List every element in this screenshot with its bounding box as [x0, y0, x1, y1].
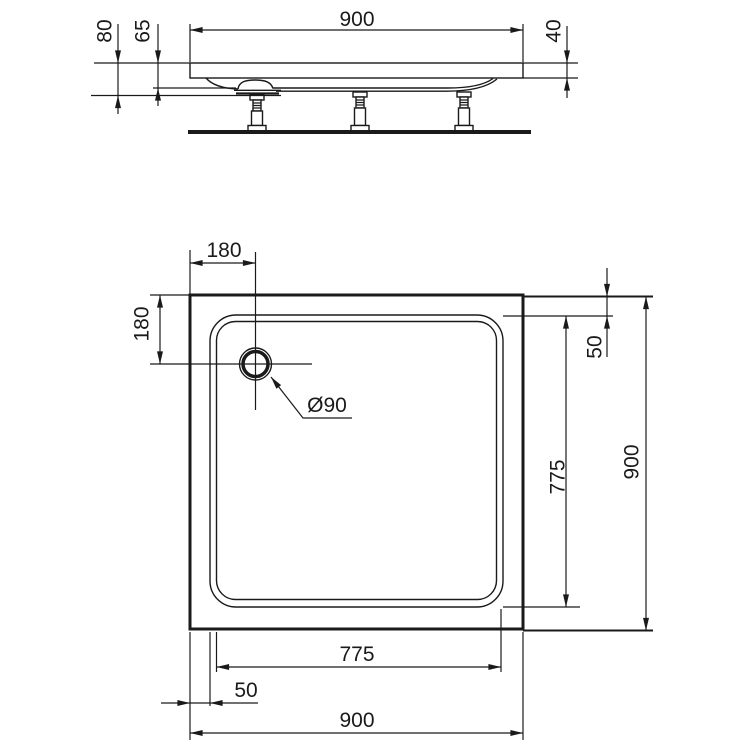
plan-view: Ø90 180 180 50 775	[130, 239, 653, 740]
dim-label-total-height: 80	[93, 19, 116, 42]
dim-label-side-overall-width: 900	[339, 8, 374, 31]
drain-trap-dome	[238, 80, 273, 89]
dim-label-plan-overall-width: 900	[339, 709, 374, 732]
side-elevation-view: 900 80 65 40	[91, 8, 578, 134]
tray-underside-profile	[206, 78, 497, 94]
floor-line	[188, 130, 531, 134]
dim-label-basin-width: 775	[339, 643, 374, 666]
dimension-drain-offset-vertical: 180	[130, 295, 190, 364]
leg-middle	[351, 92, 369, 131]
dimension-overall-height: 900	[620, 297, 646, 631]
basin-floor-edge	[217, 322, 497, 600]
dimension-drain-offset-horizontal: 180	[190, 239, 256, 295]
dim-label-rim-thickness: 40	[542, 19, 565, 42]
extension-line	[523, 63, 578, 78]
dim-label-body-height: 65	[131, 19, 154, 42]
drain-centerlines	[150, 252, 312, 410]
tray-rim-profile	[190, 63, 523, 78]
leg-right	[455, 92, 473, 131]
dim-label-drain-offset-vertical: 180	[130, 306, 153, 341]
dimension-rim-thickness: 40	[523, 19, 578, 98]
dim-label-drain-diameter: Ø90	[307, 394, 347, 417]
drain-callout: Ø90	[271, 377, 352, 418]
tray-inner-rim	[210, 315, 503, 607]
dimension-overall-width-bottom: 900	[190, 709, 523, 733]
dim-label-rim-inset-top: 50	[583, 335, 606, 358]
dimension-basin-width: 775	[217, 643, 502, 667]
dim-label-basin-length: 775	[546, 459, 569, 494]
dimension-basin-length: 775	[546, 316, 569, 607]
dimension-overall-width-top: 900	[190, 8, 523, 62]
dim-label-drain-offset-horizontal: 180	[206, 239, 241, 262]
dim-label-overall-height: 900	[620, 444, 643, 479]
dim-label-rim-inset-left: 50	[234, 679, 257, 702]
dimension-rim-inset-top: 50	[583, 268, 607, 359]
tray-outer-edge	[190, 295, 523, 629]
leg-left	[248, 95, 266, 131]
technical-drawing-canvas: 900 80 65 40	[0, 0, 750, 750]
